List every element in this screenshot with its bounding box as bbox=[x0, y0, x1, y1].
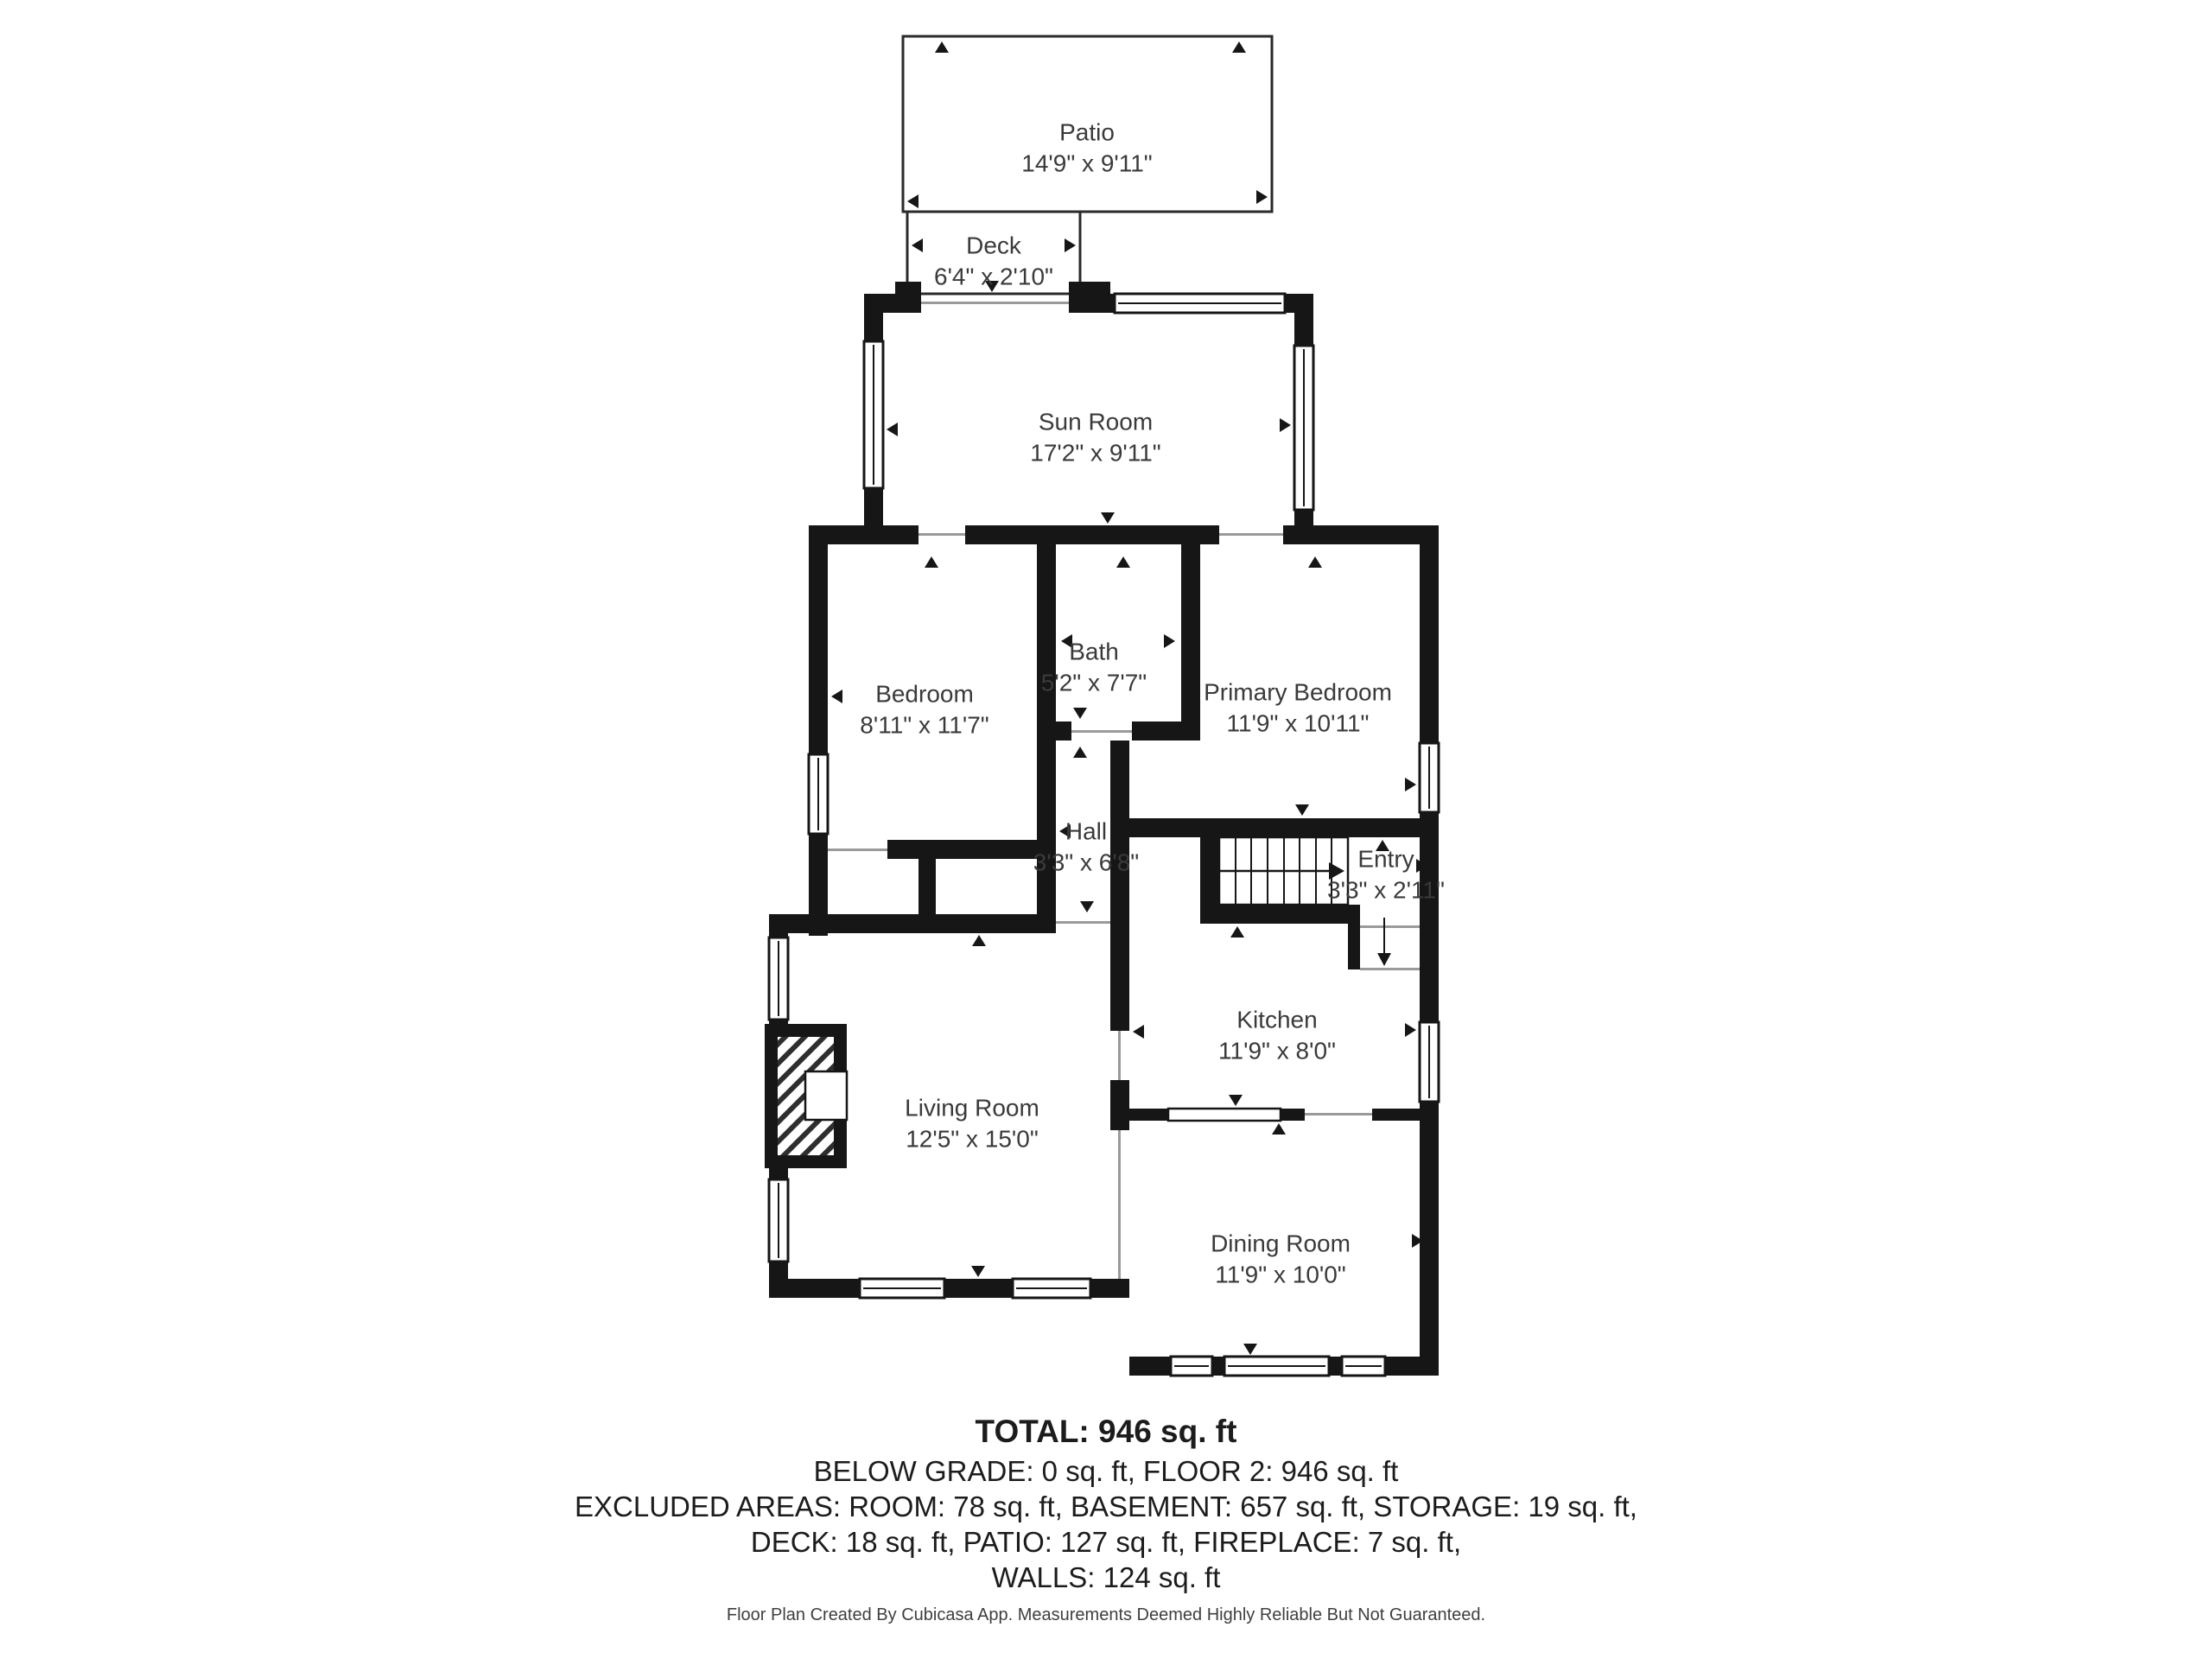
window bbox=[860, 1279, 944, 1298]
opening-line bbox=[1118, 1031, 1121, 1080]
room-name: Hall bbox=[1033, 817, 1139, 848]
window bbox=[769, 1179, 788, 1262]
room-label-primary-bedroom: Primary Bedroom 11'9" x 10'11" bbox=[1204, 677, 1392, 741]
room-dims: 11'9" x 10'11" bbox=[1204, 709, 1392, 740]
wall bbox=[1090, 1279, 1129, 1298]
measure-arrow bbox=[1080, 901, 1094, 912]
opening-line bbox=[1219, 533, 1283, 536]
room-name: Bath bbox=[1041, 637, 1147, 668]
opening-line bbox=[1305, 1113, 1372, 1116]
wall bbox=[1212, 1357, 1224, 1376]
opening-line bbox=[828, 849, 887, 851]
room-label-patio: Patio 14'9" x 9'11" bbox=[1021, 118, 1152, 181]
total-area-text: TOTAL: 946 sq. ft bbox=[0, 1414, 2212, 1450]
wall bbox=[1110, 1080, 1129, 1130]
room-label-entry: Entry 3'3" x 2'11" bbox=[1327, 844, 1445, 907]
window bbox=[1420, 743, 1439, 812]
measure-arrow bbox=[1073, 747, 1087, 758]
room-dims: 3'3" x 2'11" bbox=[1327, 875, 1445, 906]
room-dims: 11'9" x 10'0" bbox=[1211, 1260, 1351, 1291]
wall bbox=[1210, 905, 1348, 924]
wall bbox=[1385, 1357, 1439, 1376]
walls-area-text: WALLS: 124 sq. ft bbox=[0, 1561, 2212, 1594]
window bbox=[1224, 1357, 1329, 1376]
measure-arrow bbox=[1405, 1023, 1416, 1037]
window bbox=[1171, 1357, 1212, 1376]
room-label-bath: Bath 5'2" x 7'7" bbox=[1041, 637, 1147, 700]
wall bbox=[1181, 544, 1200, 741]
floor-plan-page: Patio 14'9" x 9'11" Deck 6'4" x 2'10" Su… bbox=[0, 0, 2212, 1659]
window bbox=[1294, 346, 1313, 510]
wall bbox=[1132, 721, 1200, 741]
below-grade-text: BELOW GRADE: 0 sq. ft, FLOOR 2: 946 sq. … bbox=[0, 1455, 2212, 1488]
room-name: Sun Room bbox=[1030, 407, 1160, 438]
measure-arrow bbox=[1133, 1025, 1144, 1039]
window bbox=[1013, 1279, 1090, 1298]
room-dims: 14'9" x 9'11" bbox=[1021, 149, 1152, 180]
measure-arrow bbox=[971, 1266, 985, 1277]
room-name: Living Room bbox=[905, 1093, 1039, 1124]
measure-arrow bbox=[1308, 556, 1322, 568]
measure-arrow bbox=[1405, 778, 1416, 791]
wall bbox=[944, 1279, 1013, 1298]
opening-line bbox=[1360, 968, 1420, 970]
wall bbox=[809, 525, 828, 754]
measure-arrow bbox=[887, 423, 898, 436]
measure-arrow bbox=[1101, 512, 1115, 524]
window bbox=[769, 938, 788, 1020]
wall bbox=[1037, 721, 1071, 741]
window bbox=[809, 754, 828, 834]
pass-through-opening bbox=[1168, 1109, 1281, 1121]
room-dims: 5'2" x 7'7" bbox=[1041, 668, 1147, 699]
window bbox=[1342, 1357, 1385, 1376]
room-dims: 8'11" x 11'7" bbox=[860, 710, 988, 741]
firebox bbox=[805, 1071, 847, 1120]
measure-arrow bbox=[1272, 1123, 1286, 1135]
opening-line bbox=[1360, 925, 1420, 928]
wall bbox=[1129, 1357, 1171, 1376]
room-dims: 17'2" x 9'11" bbox=[1030, 438, 1160, 469]
room-dims: 6'4" x 2'10" bbox=[934, 262, 1053, 293]
measure-arrow bbox=[1230, 926, 1244, 938]
room-label-sun-room: Sun Room 17'2" x 9'11" bbox=[1030, 407, 1160, 470]
room-name: Entry bbox=[1327, 844, 1445, 875]
wall bbox=[1420, 1102, 1439, 1376]
measure-arrow bbox=[1073, 708, 1087, 719]
measure-arrow bbox=[1164, 634, 1175, 648]
measure-arrow bbox=[972, 935, 986, 946]
room-name: Dining Room bbox=[1211, 1229, 1351, 1260]
room-label-dining-room: Dining Room 11'9" x 10'0" bbox=[1211, 1229, 1351, 1292]
wall bbox=[1372, 1109, 1439, 1121]
room-label-bedroom: Bedroom 8'11" x 11'7" bbox=[860, 679, 988, 742]
wall bbox=[769, 914, 788, 938]
opening-line bbox=[1118, 1130, 1121, 1279]
opening-line bbox=[1071, 730, 1132, 733]
wall bbox=[1129, 1109, 1168, 1121]
opening-line bbox=[921, 302, 1069, 304]
opening-line bbox=[918, 533, 965, 536]
wall bbox=[769, 914, 1056, 933]
fireplace bbox=[765, 1024, 847, 1168]
room-label-living-room: Living Room 12'5" x 15'0" bbox=[905, 1093, 1039, 1156]
wall bbox=[1110, 741, 1129, 1031]
room-label-kitchen: Kitchen 11'9" x 8'0" bbox=[1218, 1005, 1336, 1068]
excluded-areas-text-2: DECK: 18 sq. ft, PATIO: 127 sq. ft, FIRE… bbox=[0, 1526, 2212, 1559]
wall bbox=[1129, 818, 1439, 837]
wall bbox=[1294, 294, 1313, 346]
wall bbox=[965, 525, 1219, 544]
room-name: Primary Bedroom bbox=[1204, 677, 1392, 709]
area-summary: TOTAL: 946 sq. ft BELOW GRADE: 0 sq. ft,… bbox=[0, 1414, 2212, 1597]
wall bbox=[1281, 1109, 1305, 1121]
stairs-down-arrow-icon bbox=[1377, 953, 1391, 966]
wall bbox=[1080, 294, 1115, 313]
wall bbox=[1420, 525, 1439, 743]
room-name: Deck bbox=[934, 231, 1053, 262]
room-name: Patio bbox=[1021, 118, 1152, 149]
excluded-areas-text-1: EXCLUDED AREAS: ROOM: 78 sq. ft, BASEMEN… bbox=[0, 1491, 2212, 1523]
window bbox=[864, 341, 883, 488]
room-name: Bedroom bbox=[860, 679, 988, 710]
measure-arrow bbox=[1243, 1344, 1257, 1355]
room-label-hall: Hall 3'3" x 6'8" bbox=[1033, 817, 1139, 880]
measure-arrow bbox=[1116, 556, 1130, 568]
wall bbox=[887, 840, 1048, 859]
room-dims: 11'9" x 8'0" bbox=[1218, 1036, 1336, 1067]
wall bbox=[1329, 1357, 1342, 1376]
wall bbox=[1348, 905, 1360, 969]
measure-arrow bbox=[1280, 418, 1291, 432]
room-dims: 12'5" x 15'0" bbox=[905, 1124, 1039, 1155]
wall bbox=[864, 294, 883, 341]
room-label-deck: Deck 6'4" x 2'10" bbox=[934, 231, 1053, 294]
room-dims: 3'3" x 6'8" bbox=[1033, 848, 1139, 879]
window bbox=[1420, 1022, 1439, 1102]
wall bbox=[1283, 525, 1439, 544]
wall bbox=[769, 1279, 860, 1298]
room-name: Kitchen bbox=[1218, 1005, 1336, 1036]
measure-arrow bbox=[925, 556, 938, 568]
window bbox=[1115, 294, 1285, 313]
opening-line bbox=[1056, 921, 1110, 924]
measure-arrow bbox=[1229, 1095, 1243, 1106]
measure-arrow bbox=[831, 690, 842, 703]
wall bbox=[883, 294, 907, 313]
measure-arrow bbox=[1295, 804, 1309, 816]
disclaimer-text: Floor Plan Created By Cubicasa App. Meas… bbox=[0, 1605, 2212, 1625]
wall bbox=[918, 849, 936, 914]
